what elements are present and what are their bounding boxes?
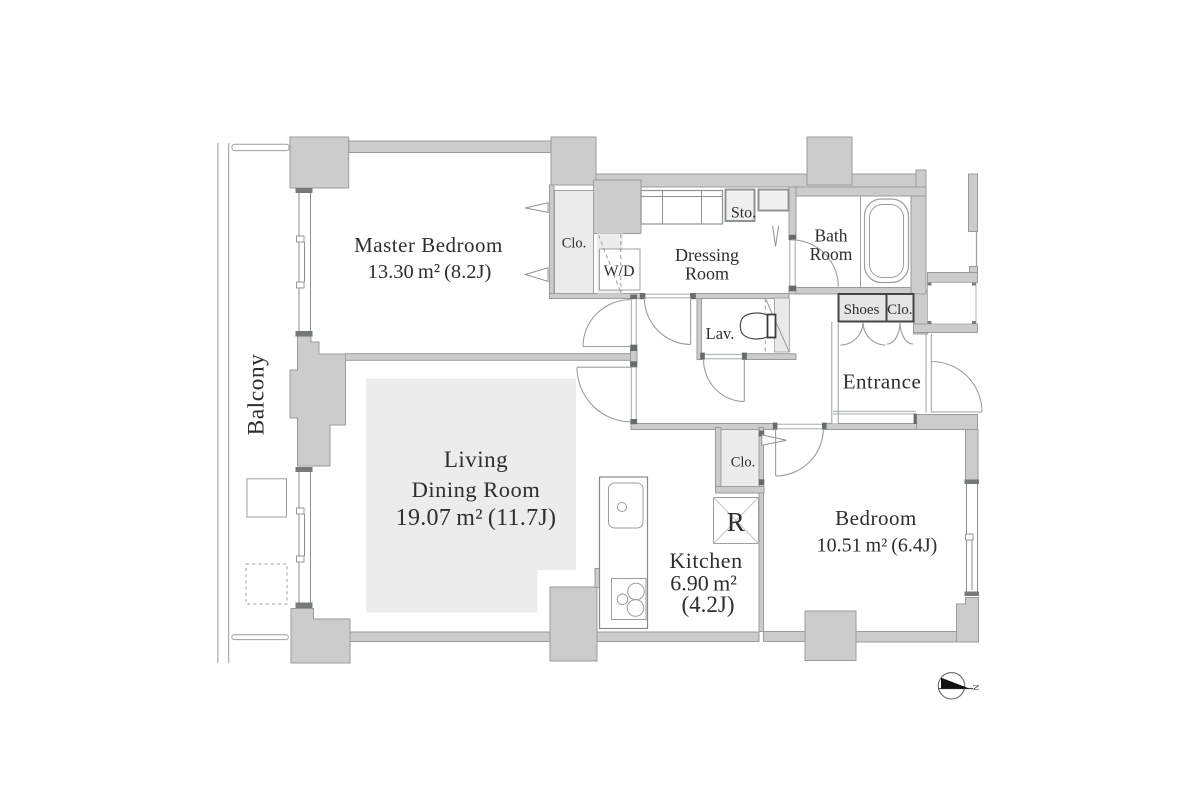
svg-text:Master Bedroom: Master Bedroom (354, 233, 503, 257)
svg-text:19.07 m² (11.7J): 19.07 m² (11.7J) (396, 505, 557, 531)
svg-text:Shoes: Shoes (844, 302, 880, 318)
svg-text:13.30 m² (8.2J): 13.30 m² (8.2J) (368, 261, 492, 283)
svg-text:10.51 m² (6.4J): 10.51 m² (6.4J) (817, 535, 938, 557)
svg-text:Room: Room (810, 244, 853, 264)
svg-text:Bath: Bath (814, 226, 847, 246)
svg-text:Dining Room: Dining Room (412, 477, 541, 502)
svg-text:Balcony: Balcony (244, 354, 270, 436)
svg-text:R: R (727, 507, 745, 537)
svg-text:Clo.: Clo. (887, 302, 912, 318)
svg-text:(4.2J): (4.2J) (681, 592, 734, 617)
svg-text:Sto.: Sto. (731, 205, 756, 222)
svg-text:Living: Living (444, 447, 508, 472)
svg-text:Entrance: Entrance (843, 370, 922, 394)
svg-text:W/D: W/D (603, 263, 634, 280)
svg-text:N: N (971, 684, 981, 690)
svg-text:Bedroom: Bedroom (835, 506, 917, 530)
svg-text:Clo.: Clo. (562, 236, 587, 252)
svg-text:Dressing: Dressing (675, 245, 739, 265)
svg-text:Room: Room (685, 264, 729, 284)
svg-text:Clo.: Clo. (731, 455, 756, 471)
svg-text:Kitchen: Kitchen (669, 548, 742, 573)
svg-text:Lav.: Lav. (706, 324, 735, 343)
